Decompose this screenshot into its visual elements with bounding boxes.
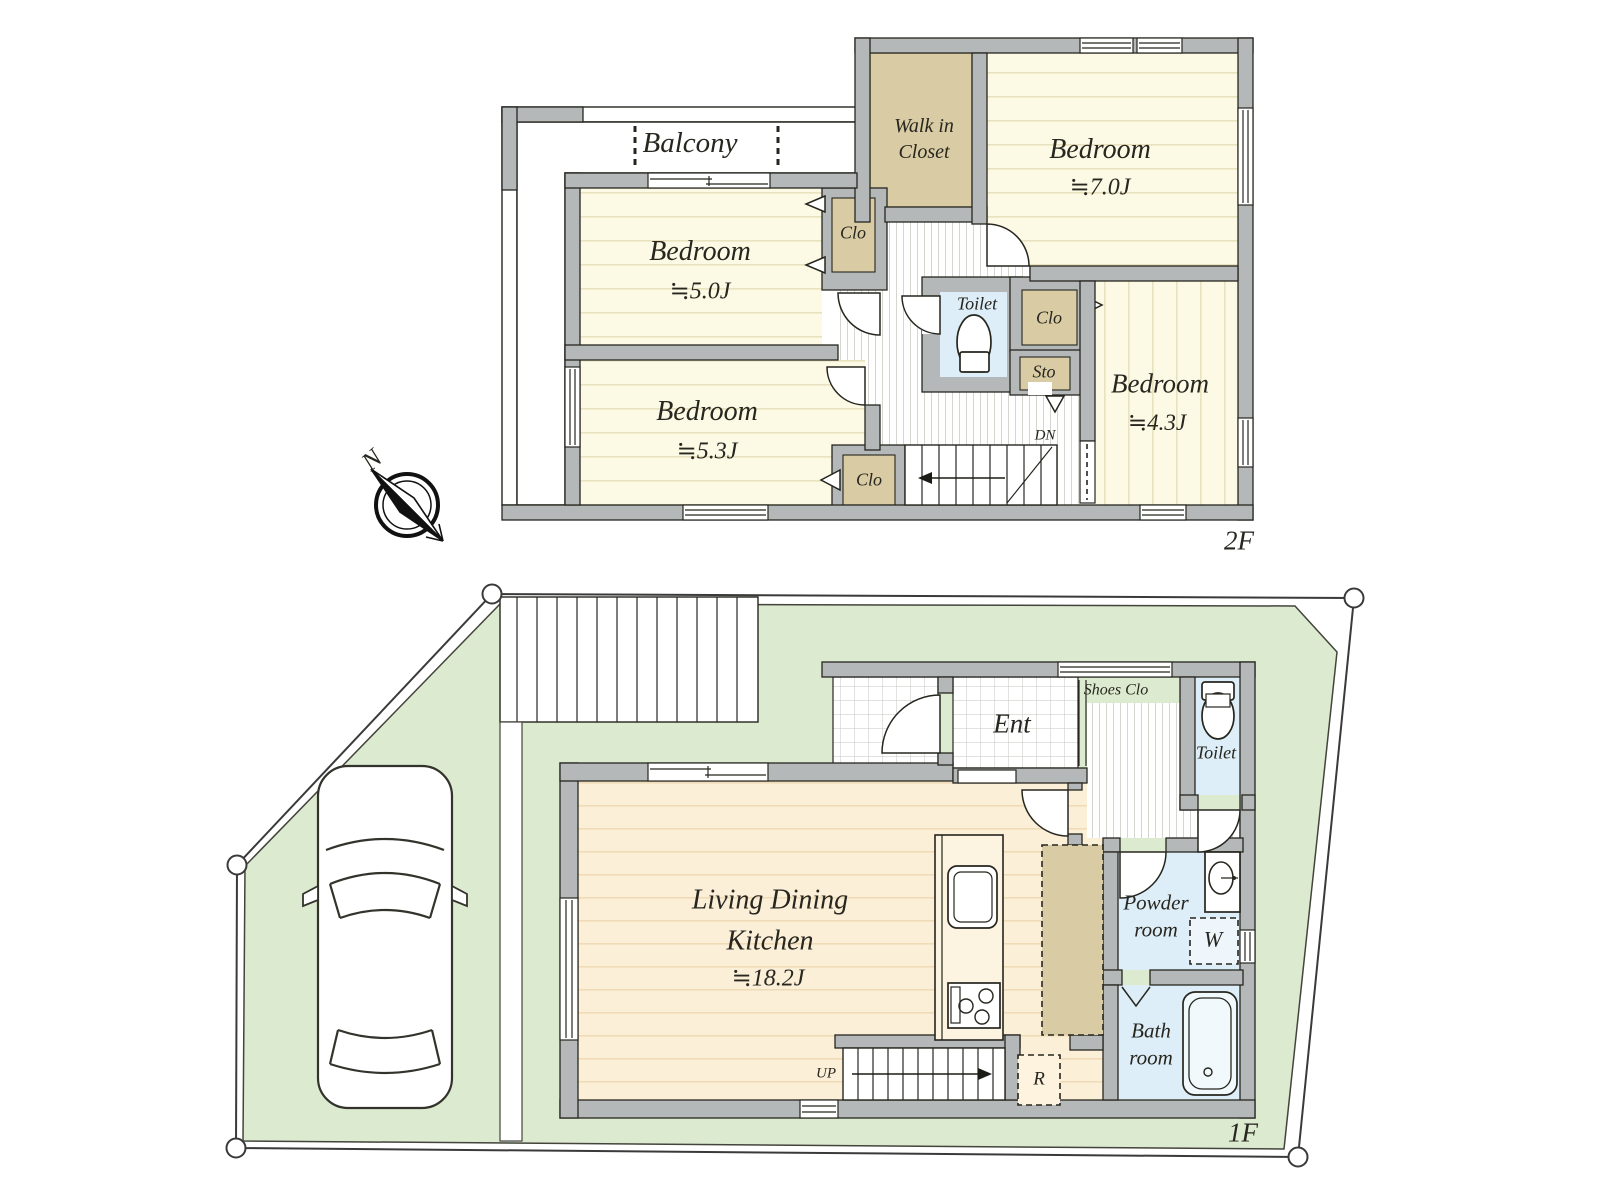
cupboard [1042,845,1103,1035]
bedroom-east-name: Bedroom [1111,366,1209,401]
bath-room-label: Bath room [1111,1018,1191,1073]
balcony-label: Balcony [642,125,737,163]
kitchen-island [935,835,1003,1040]
sink-icon [1205,852,1240,912]
storage-label: Sto [1032,360,1055,383]
powder-room-label: Powder room [1106,890,1206,945]
window-icon [1238,108,1253,205]
site-plan-1f [227,585,1364,1167]
window-icon [560,898,578,1040]
closet-southwest-label: Clo [856,468,882,491]
bedroom-north-size: ≒7.0J [1070,172,1131,203]
toilet-icon [1202,682,1234,739]
refrigerator-label: R [1033,1068,1045,1093]
entrance-label: Ent [993,706,1031,741]
kitchen-sink-icon [948,866,997,928]
bedroom-5-3-floor [580,360,865,505]
sliding-door-bedroom-4-3 [1080,441,1095,503]
washer-label: W [1204,926,1222,955]
closet-west-label: Clo [840,221,866,244]
bedroom-north-name: Bedroom [1049,132,1151,168]
stairs-1f [843,1048,1005,1100]
approach-path [500,722,522,1141]
window-icon [648,763,768,781]
toilet-2f-label: Toilet [957,292,997,315]
window-icon [800,1100,838,1118]
stairs-up-label: UP [816,1064,836,1084]
floor-plan-page: Balcony Walk in Closet Bedroom ≒7.0J Bed… [0,0,1600,1200]
bedroom-east-size: ≒4.3J [1128,408,1186,438]
walk-in-closet-label: Walk in Closet [869,113,979,165]
floor-2f-label: 2F [1224,523,1254,558]
window-icon [1058,662,1172,677]
compass-icon [371,469,443,541]
entrance-step [958,770,1016,783]
window-icon [683,505,768,520]
toilet-icon [957,315,991,372]
stove-icon [948,983,1000,1028]
window-icon [1140,505,1186,520]
stairs-2f [905,445,1057,505]
shoes-closet-label: Shoes Clo [1084,681,1148,702]
toilet-1f-label: Toilet [1196,741,1236,764]
exterior-steps [500,597,758,722]
window-icon [1238,418,1253,467]
ldk-name: Living Dining Kitchen [645,880,895,961]
bedroom-west-size: ≒5.0J [670,276,731,307]
floor-2f-plan [502,38,1253,520]
window-icon [1240,930,1255,963]
bedroom-southwest-size: ≒5.3J [677,436,738,467]
floor-1f-label: 1F [1228,1115,1258,1150]
car-icon [303,766,467,1108]
bathtub-icon [1183,992,1237,1095]
window-icon [1137,38,1182,53]
bedroom-southwest-name: Bedroom [656,394,758,430]
ldk-size: ≒18.2J [732,963,805,994]
closet-east-label: Clo [1036,306,1062,329]
window-icon [1080,38,1133,53]
stairs-down-label: DN [1035,426,1056,446]
floor-plan-drawing [0,0,1600,1200]
balcony-sliding-door-icon [648,173,770,188]
window-icon [565,367,580,447]
bedroom-west-name: Bedroom [649,234,751,270]
